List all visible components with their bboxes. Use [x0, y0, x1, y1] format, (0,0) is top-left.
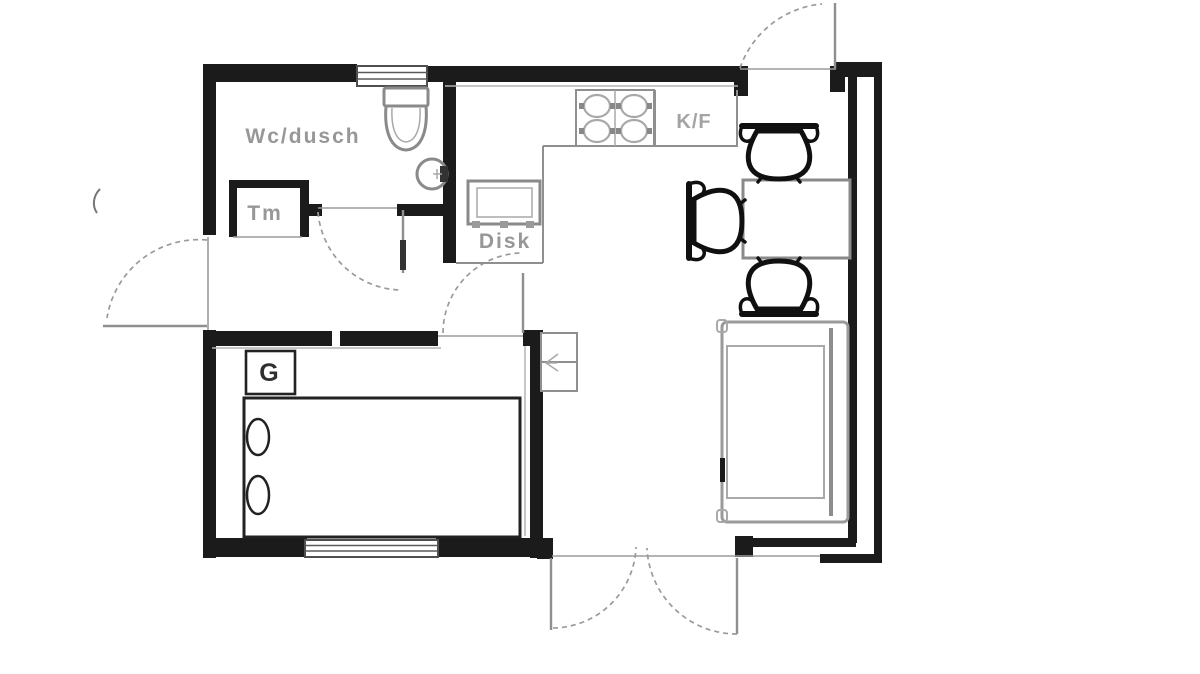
stove	[576, 90, 654, 146]
wall-segment	[229, 180, 237, 237]
bed	[244, 398, 520, 537]
sofa-tick	[720, 458, 725, 482]
entry-door	[740, 3, 836, 69]
door-swing-arc	[443, 253, 523, 333]
sink-tick	[500, 221, 508, 228]
dining-chair-left	[689, 182, 745, 259]
floorplan: Wc/dusch Tm Disk K/F G	[0, 0, 1200, 674]
bedroom-door	[438, 253, 523, 336]
wall-segment	[229, 180, 308, 188]
toilet-tank	[384, 88, 428, 106]
pillow	[247, 476, 269, 514]
bed-frame	[244, 398, 520, 537]
wall-segment	[427, 66, 740, 82]
wall-segment	[203, 330, 216, 558]
door-swing-arc	[647, 548, 737, 634]
wall-segment	[874, 66, 882, 563]
window-bedroom	[305, 540, 438, 557]
service-shaft	[541, 333, 577, 391]
wall-segment	[735, 536, 753, 557]
door-leaf-dark	[400, 240, 406, 270]
door-swing-arc	[553, 547, 636, 628]
wall-segment	[210, 331, 332, 346]
dining-table	[743, 180, 850, 258]
dining-chair-bottom	[740, 258, 817, 314]
stray-mark	[94, 189, 100, 213]
wall-segment	[820, 554, 882, 563]
pillow	[247, 419, 269, 455]
sink-bench	[468, 181, 540, 228]
wall-segment	[203, 64, 216, 235]
wall-segment	[537, 538, 553, 559]
wall-segment	[300, 180, 309, 237]
toilet	[384, 88, 428, 150]
wall-segment	[436, 538, 543, 557]
dining-chair-top	[740, 126, 817, 182]
sink-tick	[526, 221, 534, 228]
door-swing-arc	[740, 4, 822, 68]
bathroom-door	[318, 208, 406, 290]
door-swing-arc	[107, 240, 207, 318]
washbasin	[417, 159, 448, 189]
fridge-freezer-label: K/F	[676, 111, 711, 133]
wall-segment	[308, 204, 322, 216]
patio-double-door	[551, 547, 820, 634]
bathroom-label: Wc/dusch	[245, 125, 360, 148]
window-frame	[305, 540, 438, 557]
closet-label: Tm	[247, 202, 283, 225]
window-frame	[357, 66, 427, 86]
left-exit-door	[103, 237, 208, 330]
wardrobe-label: G	[259, 359, 278, 387]
window-bathroom	[357, 66, 427, 86]
wall-segment	[203, 538, 307, 557]
wall-segment	[203, 64, 357, 82]
sink-bench-label: Disk	[479, 230, 531, 253]
wall-segment	[340, 331, 438, 346]
sink-tick	[472, 221, 480, 228]
wall-segment	[744, 538, 856, 547]
door-swing-arc	[318, 212, 400, 290]
sofa	[717, 320, 848, 522]
floorplan-svg: Wc/dusch Tm Disk K/F G	[0, 0, 1200, 674]
